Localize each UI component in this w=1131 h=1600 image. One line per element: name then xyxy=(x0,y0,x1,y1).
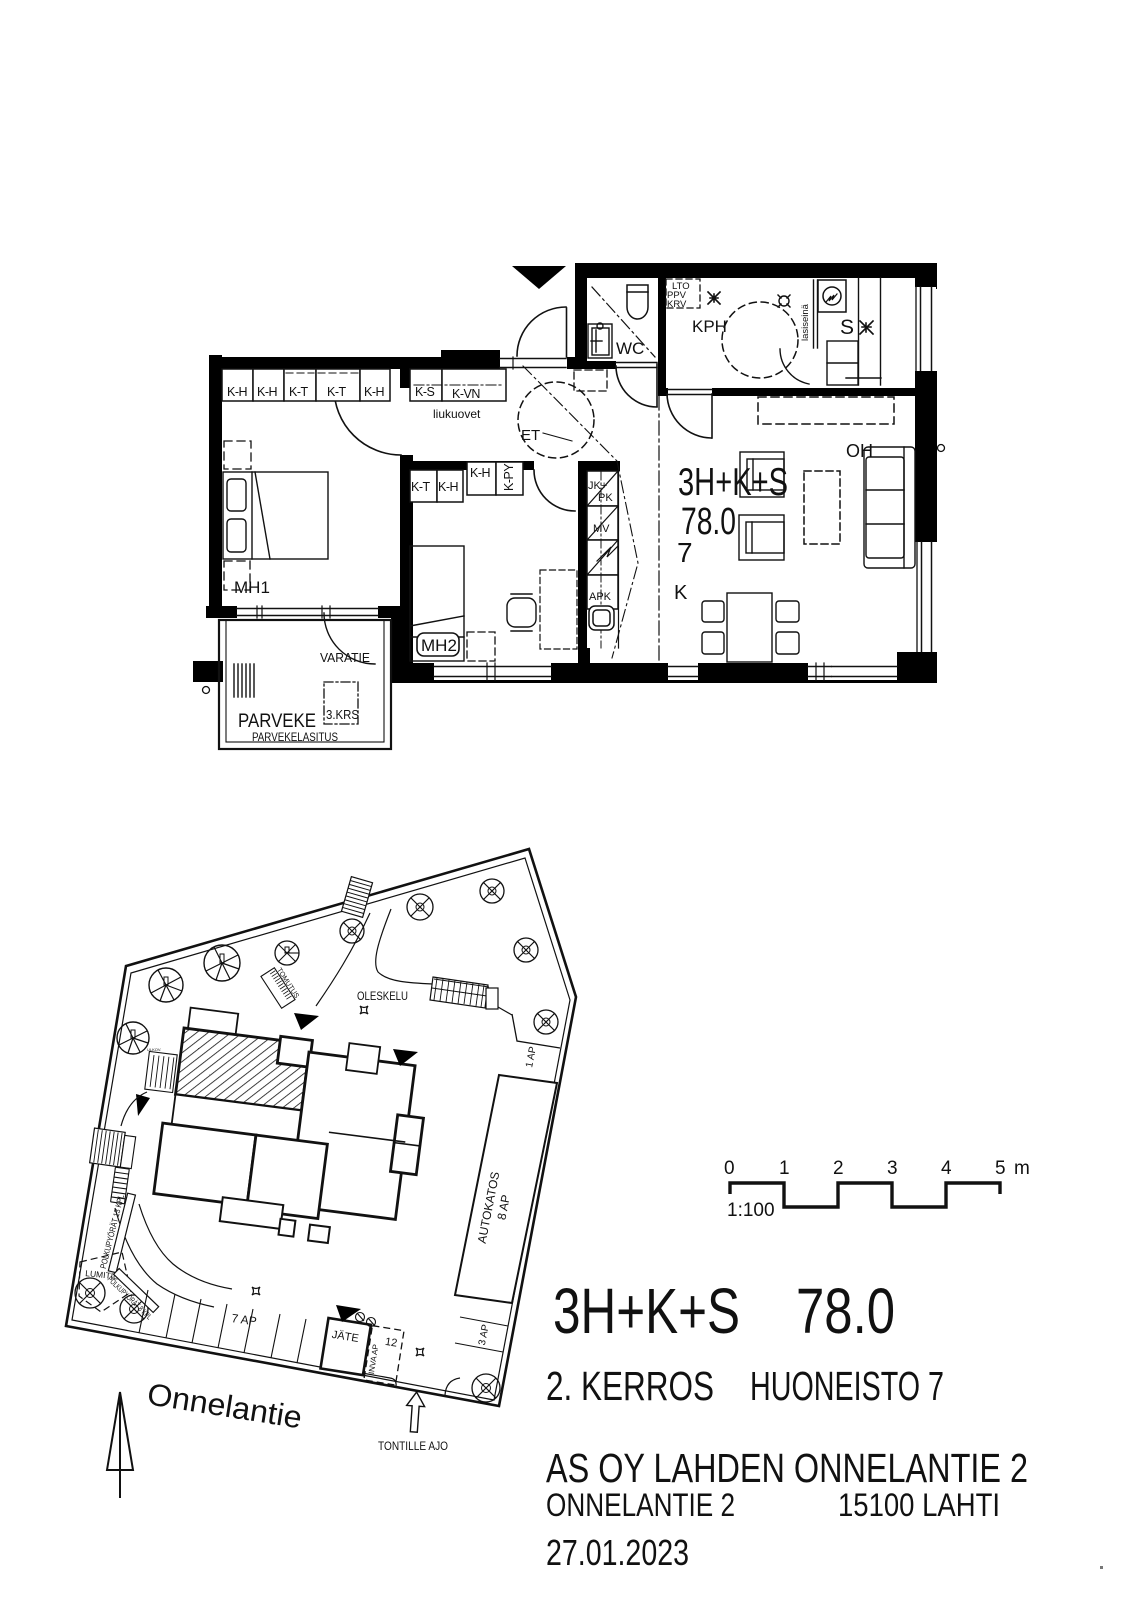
svg-text:KPH: KPH xyxy=(692,317,727,336)
svg-text:K-T: K-T xyxy=(411,480,431,494)
svg-text:K-T: K-T xyxy=(327,385,347,399)
svg-text:PARVEKE: PARVEKE xyxy=(238,711,316,732)
svg-text:4: 4 xyxy=(941,1158,952,1179)
svg-text:K: K xyxy=(674,582,688,604)
svg-text:78.0: 78.0 xyxy=(796,1275,895,1347)
svg-text:VARATIE: VARATIE xyxy=(320,650,370,665)
svg-text:liukuovet: liukuovet xyxy=(433,407,481,421)
svg-text:OH: OH xyxy=(846,441,873,461)
svg-text:WC: WC xyxy=(616,339,644,358)
svg-text:MH2: MH2 xyxy=(421,636,457,655)
svg-text:TONTILLE AJO: TONTILLE AJO xyxy=(378,1441,448,1453)
svg-text:PK: PK xyxy=(598,492,613,504)
svg-text:K-PY: K-PY xyxy=(502,463,516,491)
svg-text:5: 5 xyxy=(995,1158,1006,1179)
svg-text:27.01.2023: 27.01.2023 xyxy=(546,1532,689,1573)
svg-text:2: 2 xyxy=(833,1158,844,1179)
svg-text:m: m xyxy=(1014,1158,1030,1179)
svg-text:K-VN: K-VN xyxy=(452,387,480,401)
svg-text:ONNELANTIE 2: ONNELANTIE 2 xyxy=(546,1487,735,1523)
svg-text:lasiseinä: lasiseinä xyxy=(800,303,811,341)
svg-text:ULKOV.: ULKOV. xyxy=(147,1047,161,1052)
svg-text:AS OY LAHDEN ONNELANTIE 2: AS OY LAHDEN ONNELANTIE 2 xyxy=(546,1445,1028,1491)
svg-text:3: 3 xyxy=(887,1158,898,1179)
svg-text:1:100: 1:100 xyxy=(727,1200,775,1221)
svg-text:K-H: K-H xyxy=(470,466,491,480)
svg-text:S: S xyxy=(840,316,854,339)
svg-text:3H+K+S: 3H+K+S xyxy=(553,1275,740,1347)
svg-text:3H+K+S: 3H+K+S xyxy=(678,461,788,504)
svg-text:K-S: K-S xyxy=(415,385,435,399)
svg-text:K-H: K-H xyxy=(438,480,459,494)
svg-text:15100 LAHTI: 15100 LAHTI xyxy=(838,1487,1000,1523)
svg-text:K-H: K-H xyxy=(227,385,248,399)
svg-text:MV: MV xyxy=(593,523,610,535)
svg-text:MH1: MH1 xyxy=(234,578,270,597)
svg-text:APK: APK xyxy=(589,591,612,603)
svg-text:1: 1 xyxy=(779,1158,790,1179)
svg-text:12: 12 xyxy=(384,1336,398,1350)
svg-text:7: 7 xyxy=(677,537,693,568)
svg-text:3.KRS: 3.KRS xyxy=(326,707,359,722)
svg-text:K-H: K-H xyxy=(364,385,385,399)
svg-text:KRV: KRV xyxy=(667,299,687,310)
svg-text:PARVEKELASITUS: PARVEKELASITUS xyxy=(252,730,338,744)
svg-text:OLESKELU: OLESKELU xyxy=(357,991,408,1003)
svg-text:K-T: K-T xyxy=(289,385,309,399)
svg-text:K-H: K-H xyxy=(257,385,278,399)
svg-text:2. KERROS: 2. KERROS xyxy=(546,1363,714,1409)
svg-text:JK+: JK+ xyxy=(588,480,607,492)
svg-text:0: 0 xyxy=(724,1158,735,1179)
svg-text:HUONEISTO 7: HUONEISTO 7 xyxy=(750,1363,944,1409)
svg-text:ET: ET xyxy=(521,427,540,444)
